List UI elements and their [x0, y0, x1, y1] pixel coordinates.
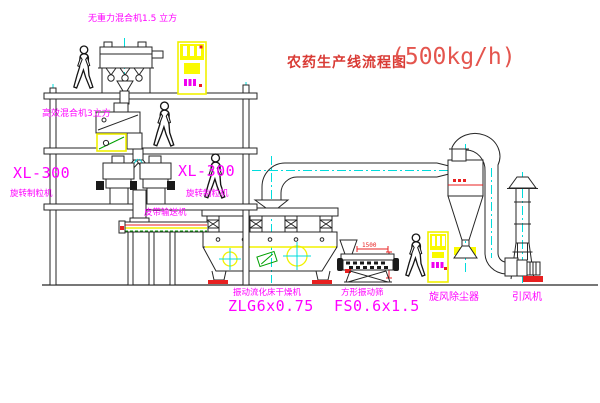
label-cyclone: 旋风除尘器 [429, 293, 479, 303]
label-gravity-mixer: 无重力混合机1.5 立方 [88, 15, 177, 24]
label-mixer-3m3: 高效混合机3立方 [42, 110, 111, 119]
process-flow-diagram: 农药生产线流程图 (500kg/h) 无重力混合机1.5 立方 高效混合机3立方… [0, 0, 600, 403]
label-sieve-model: FS0.6x1.5 [334, 299, 420, 314]
cyclone-separator [448, 133, 506, 274]
fluid-bed-dryer [202, 208, 338, 284]
person-second-floor [154, 102, 174, 146]
label-granulator-mid-name: 旋转制粒机 [186, 190, 229, 199]
granulator-left-machine [96, 156, 137, 204]
diagram-capacity: (500kg/h) [391, 44, 516, 70]
label-fan: 引风机 [512, 293, 542, 303]
label-granulator-left-model: XL-300 [13, 166, 70, 181]
label-belt-conveyor: 皮带输送机 [144, 209, 187, 218]
control-cabinet-top [178, 42, 206, 94]
vibrator-motor [257, 251, 277, 266]
person-ground [406, 234, 425, 276]
diagram-title: 农药生产线流程图 [287, 52, 407, 72]
label-granulator-left-name: 旋转制粒机 [10, 190, 53, 199]
label-dryer-model: ZLG6x0.75 [228, 299, 314, 314]
control-cabinet-cyclone [428, 232, 448, 282]
label-granulator-mid-model: XL-300 [178, 164, 235, 179]
dimension-sieve-width: 1500 [362, 242, 376, 249]
belt-conveyor-machine [119, 221, 208, 285]
person-top-floor [74, 46, 93, 88]
spring-mounts [207, 216, 332, 232]
